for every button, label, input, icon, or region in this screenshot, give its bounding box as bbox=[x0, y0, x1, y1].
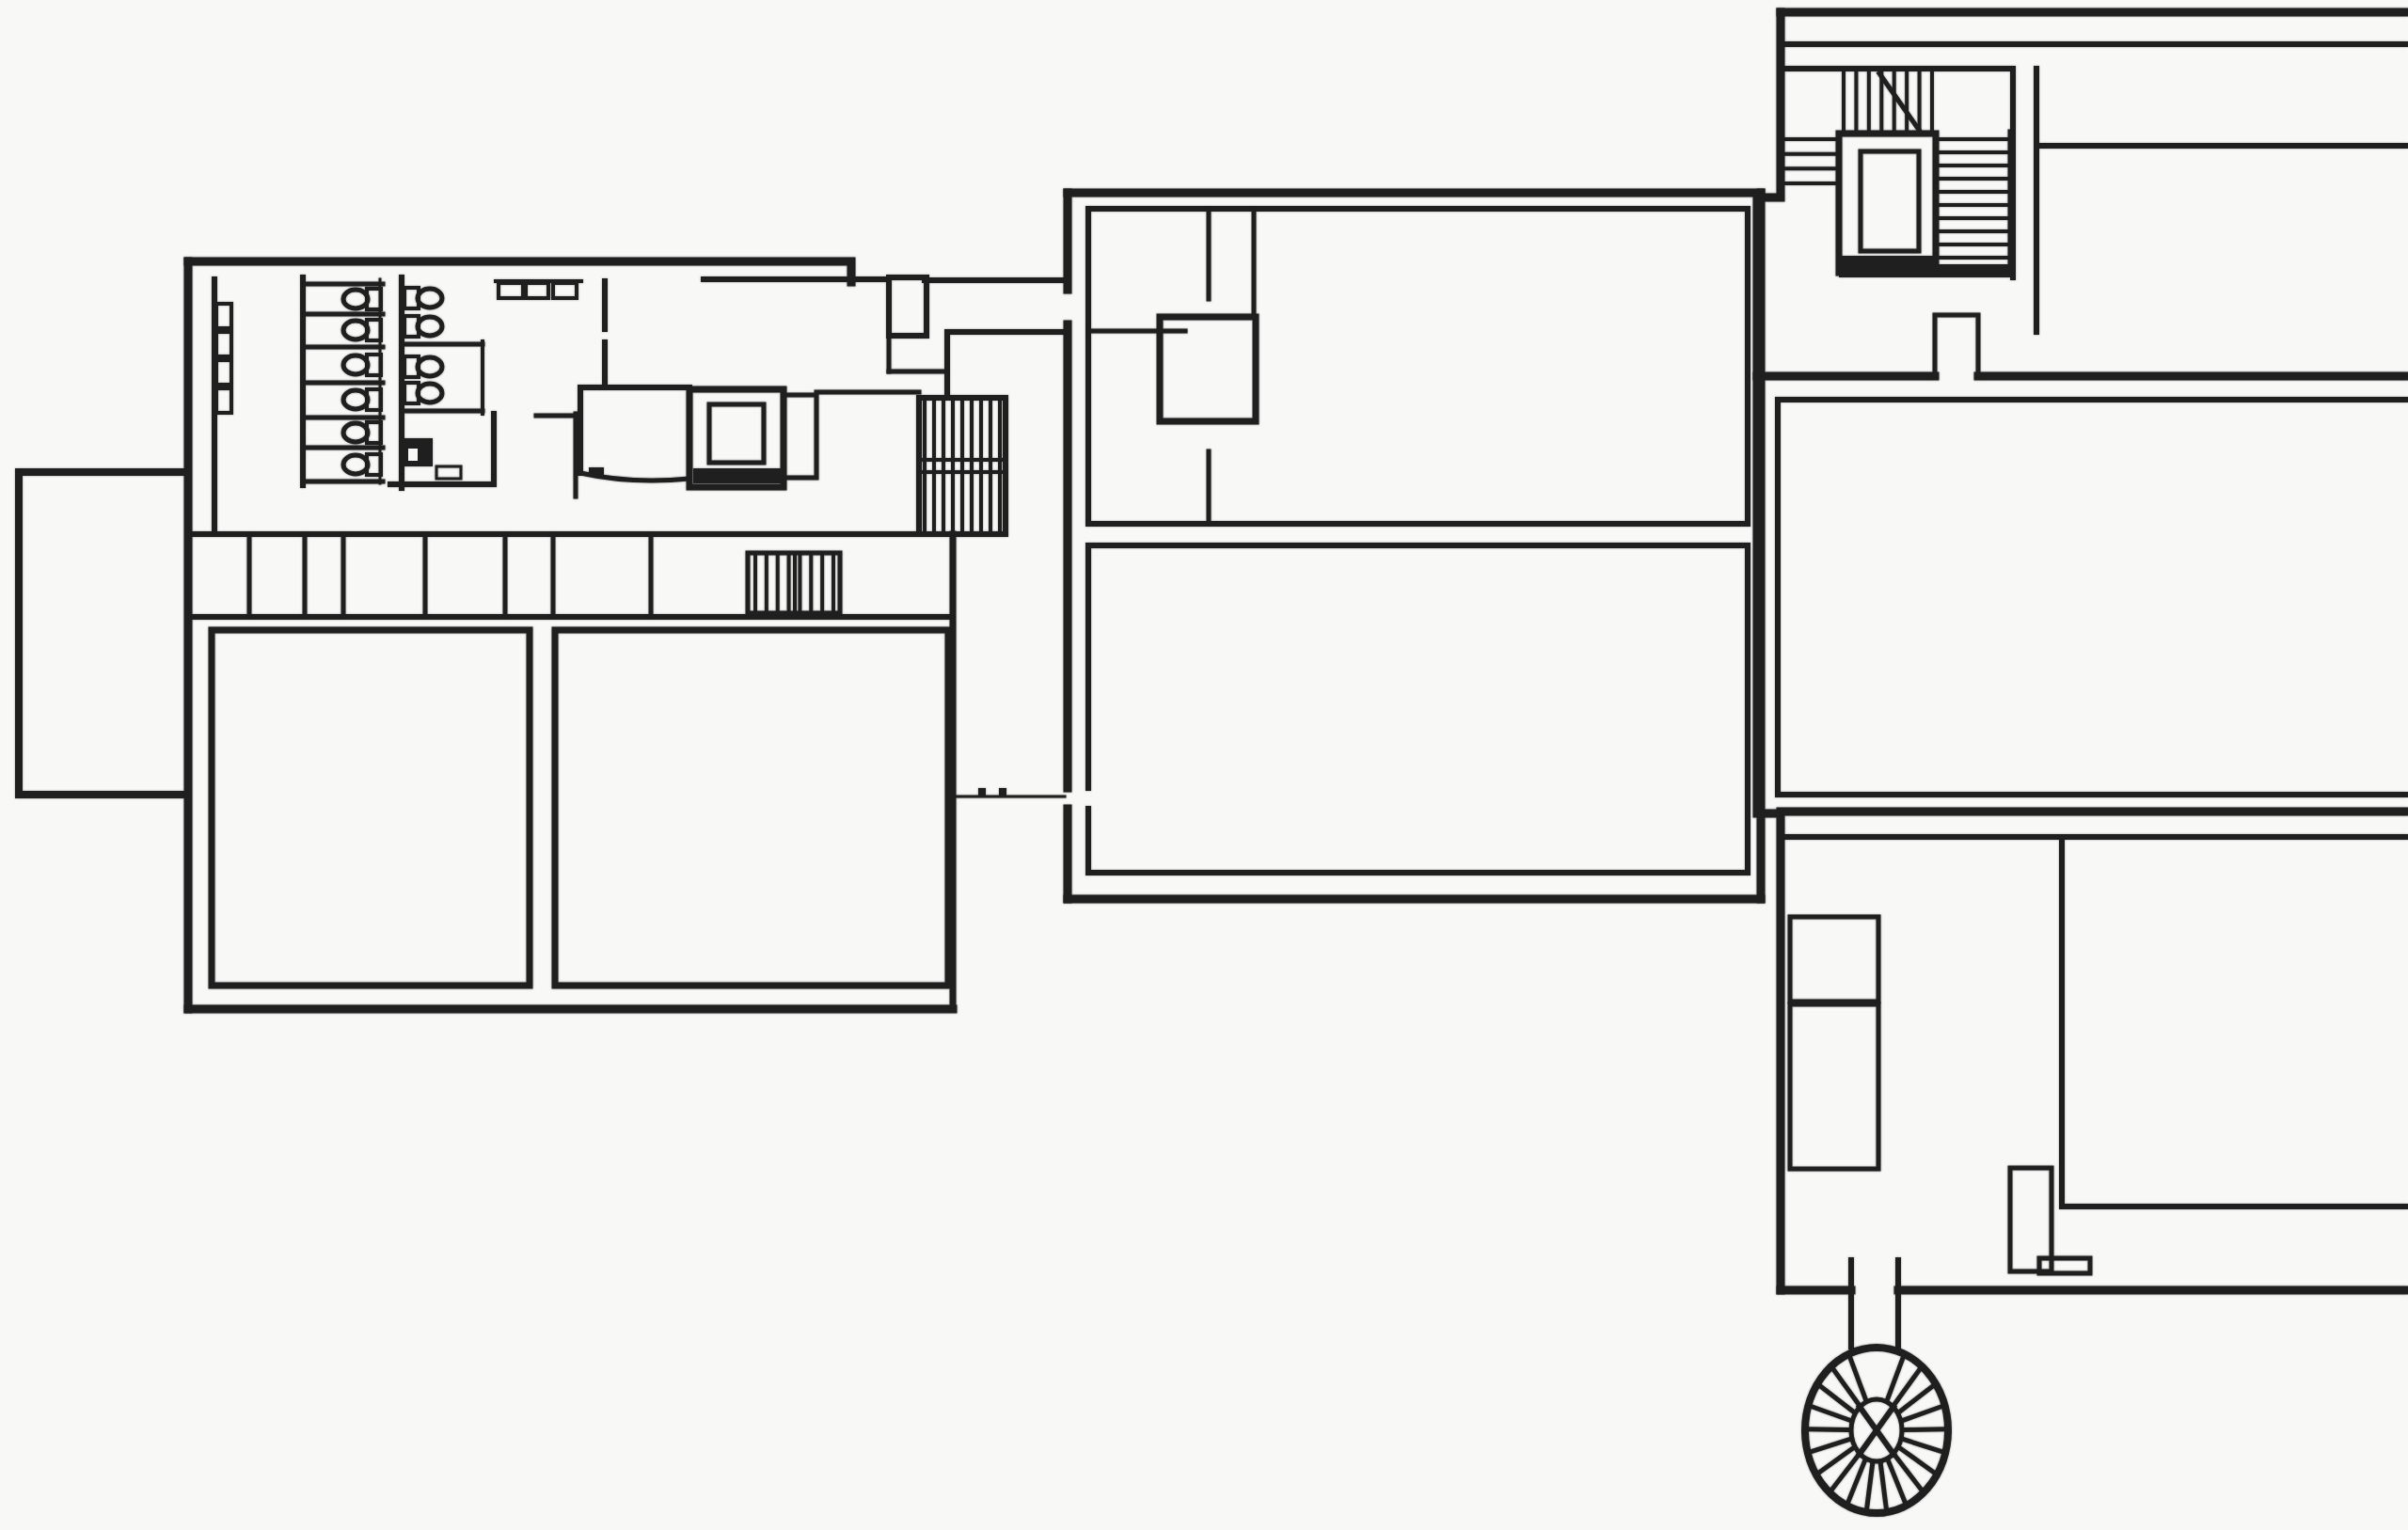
stair-diagonal bbox=[1879, 73, 1919, 130]
threshold-mark bbox=[999, 788, 1006, 797]
stair-treads-right bbox=[1936, 139, 2010, 271]
floor-plan bbox=[0, 0, 2408, 1530]
closet bbox=[1790, 917, 1878, 1002]
east-elevator-band bbox=[1842, 256, 1933, 271]
locker bbox=[216, 360, 231, 385]
east-elevator-car bbox=[1861, 151, 1919, 251]
mop-sink-notch bbox=[408, 449, 418, 461]
sink bbox=[526, 283, 548, 298]
elevator-car bbox=[709, 404, 764, 463]
west-stair-hatch bbox=[925, 401, 1000, 531]
door-bump bbox=[2039, 1258, 2090, 1273]
annex-room bbox=[19, 472, 188, 795]
toilet bbox=[404, 356, 442, 377]
sink bbox=[553, 283, 577, 298]
toilet bbox=[343, 454, 381, 475]
toilet bbox=[404, 288, 442, 308]
lift-lobby-right-wall bbox=[784, 395, 816, 478]
stair-treads-left bbox=[1783, 139, 1837, 183]
toilet bbox=[343, 422, 381, 443]
toilet bbox=[343, 355, 381, 375]
wall-mark bbox=[589, 467, 604, 476]
mid-lower-room bbox=[1088, 545, 1748, 873]
room-a bbox=[212, 630, 530, 986]
toilet bbox=[343, 389, 381, 410]
room-b bbox=[555, 630, 948, 986]
toilet bbox=[343, 289, 381, 309]
locker bbox=[216, 304, 231, 328]
soap-tray bbox=[436, 466, 461, 479]
spiral-staircase bbox=[1805, 1348, 1948, 1513]
locker bbox=[216, 388, 231, 413]
floor-plan-page bbox=[0, 0, 2408, 1530]
toilet bbox=[343, 320, 381, 340]
sink bbox=[499, 283, 523, 298]
toilet bbox=[404, 316, 442, 337]
closet bbox=[1790, 1004, 1878, 1169]
west-vestibule bbox=[889, 277, 927, 336]
stair-hatch-top bbox=[1844, 71, 1932, 132]
elevator-door-band bbox=[693, 468, 781, 483]
wall-notch bbox=[1935, 315, 1978, 376]
locker bbox=[216, 332, 231, 356]
east-big-room bbox=[1778, 400, 2408, 795]
threshold-mark bbox=[978, 788, 986, 797]
toilet bbox=[404, 383, 442, 403]
lift-lobby-top-wall bbox=[580, 387, 689, 473]
